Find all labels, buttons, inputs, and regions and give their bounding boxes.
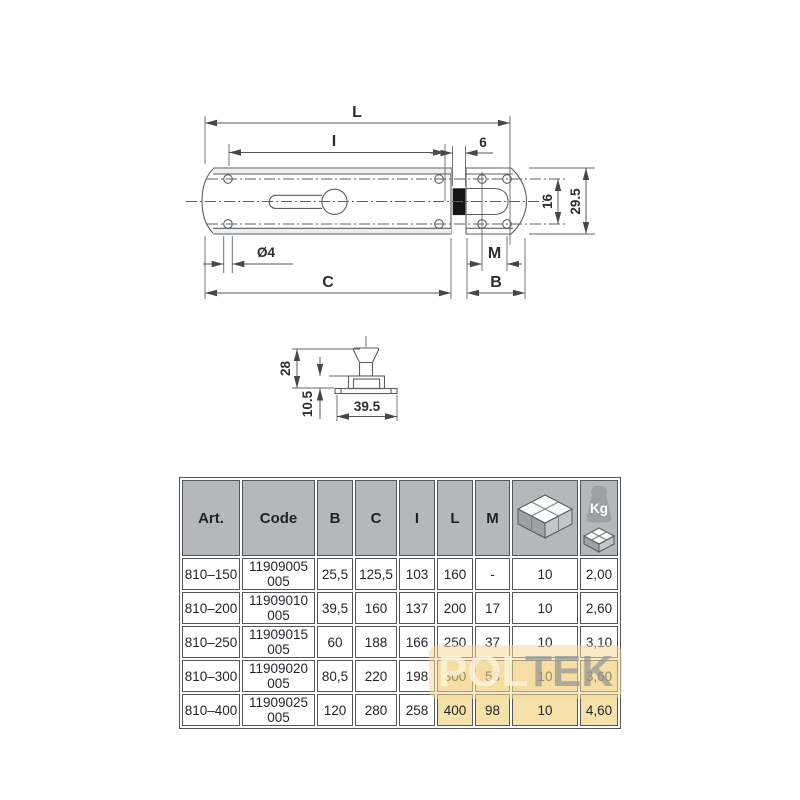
cell-l: 300 (437, 660, 473, 692)
cell-b: 120 (317, 694, 353, 726)
cell-i: 166 (399, 626, 435, 658)
cell-art: 810–300 (182, 660, 240, 692)
header-l: L (437, 480, 473, 556)
cell-m: 58 (475, 660, 510, 692)
cell-m: - (475, 558, 510, 590)
cell-m: 37 (475, 626, 510, 658)
cell-c: 188 (355, 626, 397, 658)
cell-c: 220 (355, 660, 397, 692)
cell-c: 160 (355, 592, 397, 624)
cell-b: 60 (317, 626, 353, 658)
dim-label-39-5: 39.5 (354, 399, 381, 414)
bolt-technical-drawing: L I 6 16 29.5 Ø4 M C B 28 10.5 39.5 (150, 85, 630, 453)
dim-label-10-5: 10.5 (300, 390, 315, 417)
table-row: 810–400 11909025 005 120 280 258 400 98 … (182, 694, 618, 726)
cell-art: 810–250 (182, 626, 240, 658)
cell-pack: 10 (512, 558, 578, 590)
dim-label-28: 28 (278, 361, 293, 377)
cell-art: 810–400 (182, 694, 240, 726)
dim-label-29-5: 29.5 (568, 188, 583, 215)
cell-m: 17 (475, 592, 510, 624)
cell-i: 103 (399, 558, 435, 590)
kg-label: Kg (590, 501, 608, 516)
cell-b: 39,5 (317, 592, 353, 624)
cell-b: 80,5 (317, 660, 353, 692)
dim-label-dia4: Ø4 (257, 245, 276, 260)
cell-code: 11909015 005 (242, 626, 315, 658)
dim-label-16: 16 (540, 194, 555, 210)
packaging-box-icon (515, 493, 575, 540)
table-row: 810–150 11909005 005 25,5 125,5 103 160 … (182, 558, 618, 590)
small-box-icon (582, 527, 616, 553)
bolt-side-view: 28 10.5 39.5 (278, 336, 397, 421)
dim-label-I: I (332, 133, 336, 150)
weight-kg-icon: Kg (581, 484, 617, 525)
table-row: 810–250 11909015 005 60 188 166 250 37 1… (182, 626, 618, 658)
cell-kg: 4,60 (580, 694, 618, 726)
header-b: B (317, 480, 353, 556)
table-row: 810–300 11909020 005 80,5 220 198 300 58… (182, 660, 618, 692)
specification-table: Art. Code B C I L M Kg (179, 477, 621, 729)
cell-l: 200 (437, 592, 473, 624)
header-code: Code (242, 480, 315, 556)
cell-kg: 2,60 (580, 592, 618, 624)
cell-code: 11909025 005 (242, 694, 315, 726)
header-c: C (355, 480, 397, 556)
cell-c: 125,5 (355, 558, 397, 590)
cell-pack: 10 (512, 626, 578, 658)
cell-code: 11909010 005 (242, 592, 315, 624)
header-art: Art. (182, 480, 240, 556)
cell-pack: 10 (512, 592, 578, 624)
table-header-row: Art. Code B C I L M Kg (182, 480, 618, 556)
header-weight: Kg (580, 480, 618, 556)
cell-l: 250 (437, 626, 473, 658)
cell-i: 137 (399, 592, 435, 624)
header-i: I (399, 480, 435, 556)
cell-art: 810–150 (182, 558, 240, 590)
cell-i: 198 (399, 660, 435, 692)
cell-pack: 10 (512, 660, 578, 692)
cell-l: 400 (437, 694, 473, 726)
cell-m: 98 (475, 694, 510, 726)
cell-art: 810–200 (182, 592, 240, 624)
header-packaging (512, 480, 578, 556)
bolt-top-view (186, 168, 568, 234)
cell-l: 160 (437, 558, 473, 590)
cell-kg: 2,00 (580, 558, 618, 590)
cell-i: 258 (399, 694, 435, 726)
dim-label-6: 6 (479, 135, 487, 150)
cell-b: 25,5 (317, 558, 353, 590)
cell-code: 11909020 005 (242, 660, 315, 692)
dim-label-M: M (488, 245, 501, 262)
dim-label-C: C (322, 274, 334, 291)
cell-c: 280 (355, 694, 397, 726)
dim-label-B: B (490, 274, 502, 291)
cell-kg: 3,10 (580, 626, 618, 658)
cell-pack: 10 (512, 694, 578, 726)
cell-code: 11909005 005 (242, 558, 315, 590)
cell-kg: 3,60 (580, 660, 618, 692)
header-m: M (475, 480, 510, 556)
dim-label-L: L (352, 104, 362, 121)
table-row: 810–200 11909010 005 39,5 160 137 200 17… (182, 592, 618, 624)
